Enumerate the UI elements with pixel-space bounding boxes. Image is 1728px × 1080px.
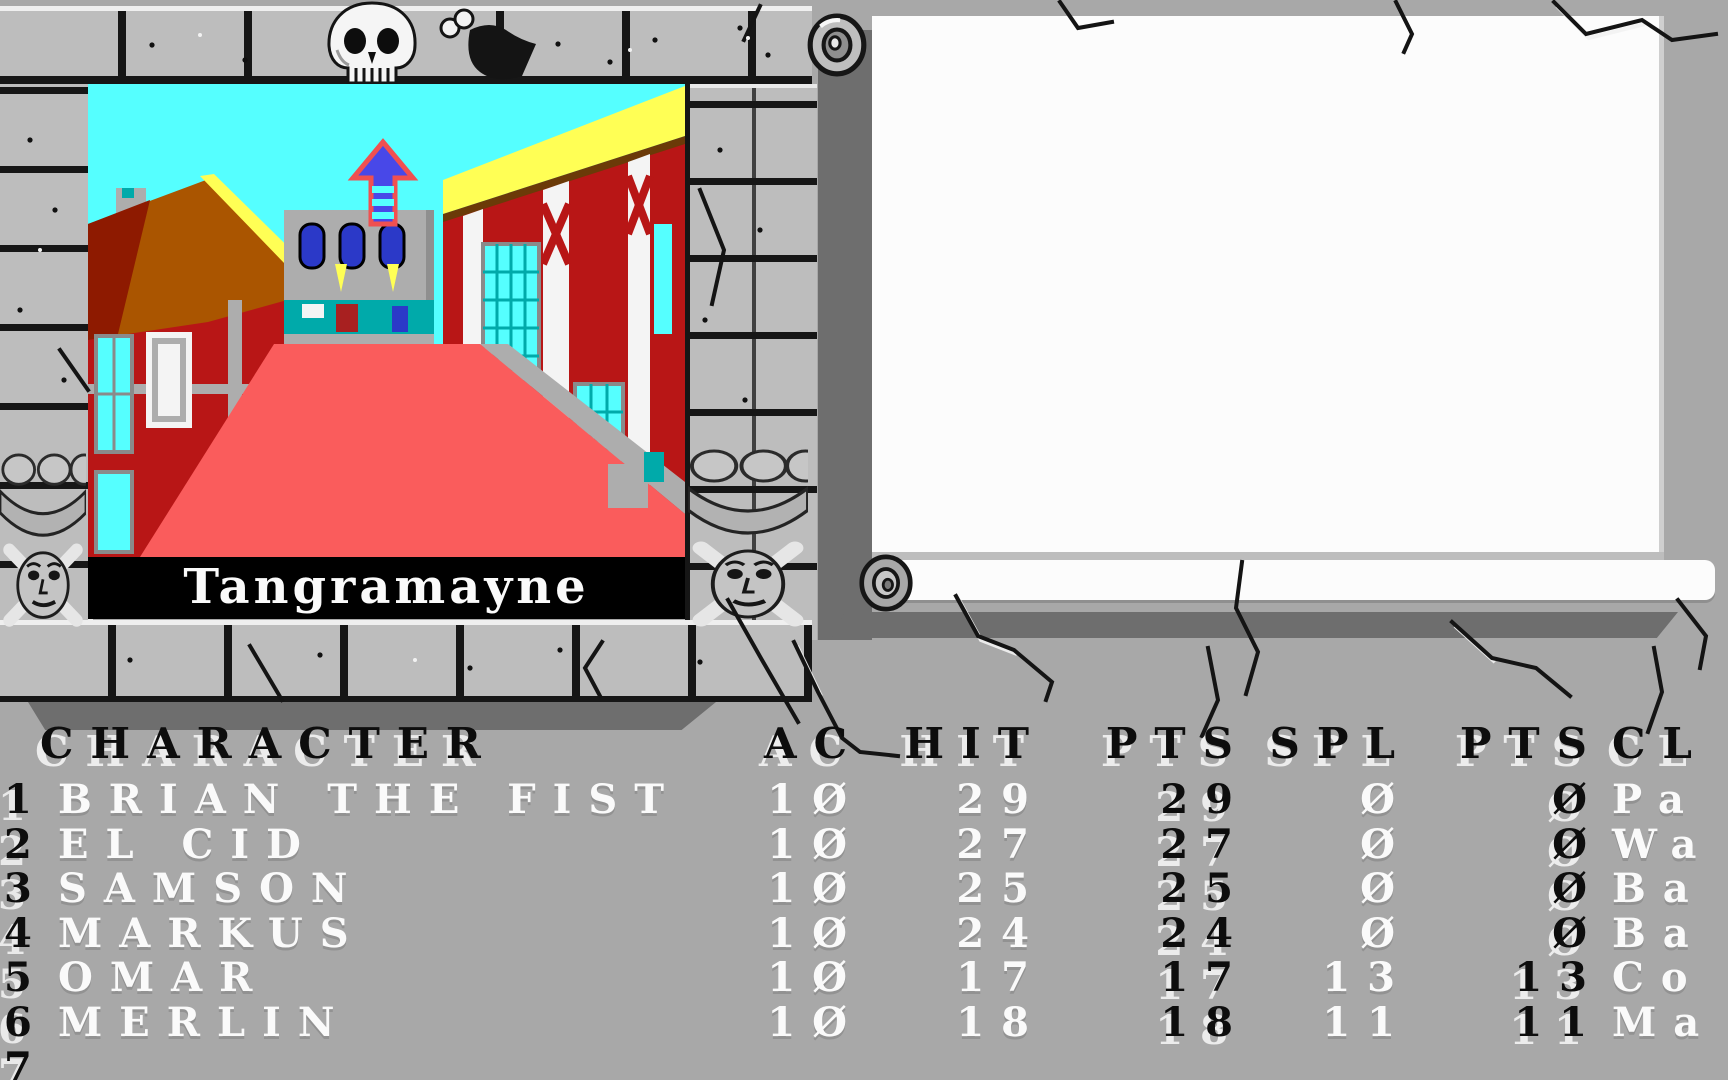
spell-points-current: Ø: [1264, 823, 1412, 867]
slot-number: 6: [4, 1001, 54, 1045]
party-member-row[interactable]: 3 SAMSON 1Ø 25 25 Ø Ø Ba: [0, 867, 1728, 912]
party-member-row[interactable]: 2 EL CID 1Ø 27 27 Ø Ø Wa: [0, 823, 1728, 868]
armor-class: 1Ø: [724, 912, 864, 956]
party-member-row[interactable]: 7: [0, 1046, 1728, 1080]
character-name: SAMSON: [58, 867, 365, 911]
slot-number: 4: [4, 912, 54, 956]
scroll-curl-icon: [806, 12, 868, 78]
game-screen: Tangramayne: [0, 0, 1728, 1080]
character-name: BRIAN THE FIST: [58, 778, 681, 822]
doorstep: [644, 452, 664, 482]
scroll-bottom-roll: [893, 560, 1715, 600]
class-abbrev: Ma: [1612, 1001, 1728, 1045]
location-label-bar: Tangramayne: [88, 557, 685, 619]
slot-number: 2: [4, 823, 54, 867]
message-scroll-window: [872, 16, 1664, 552]
scroll-left-shadow: [818, 30, 872, 640]
slot-number: 3: [4, 867, 54, 911]
class-abbrev: Wa: [1612, 823, 1728, 867]
hit-points-current: 29: [900, 778, 1046, 822]
hit-points-current: 18: [900, 1001, 1046, 1045]
col-hit: HIT: [900, 722, 1046, 766]
col-hit-pts: PTS: [1098, 722, 1250, 766]
character-name: OMAR: [58, 956, 269, 1000]
hit-points-max: 27: [1098, 823, 1250, 867]
armor-class: 1Ø: [724, 778, 864, 822]
spell-points-current: 13: [1264, 956, 1412, 1000]
stone-frame-shadow: [28, 702, 716, 730]
town-street-scene: [88, 84, 685, 557]
slot-number: 1: [4, 778, 54, 822]
armor-class: 1Ø: [724, 956, 864, 1000]
hit-points-current: 25: [900, 867, 1046, 911]
spell-points-current: Ø: [1264, 778, 1412, 822]
spell-points-max: Ø: [1452, 778, 1604, 822]
skull-and-crossbones-icon: [688, 448, 808, 638]
scene-viewport[interactable]: [88, 84, 685, 557]
hit-points-max: 25: [1098, 867, 1250, 911]
location-label: Tangramayne: [183, 559, 589, 615]
hit-points-current: 17: [900, 956, 1046, 1000]
party-member-row[interactable]: 6 MERLIN 1Ø 18 18 11 11 Ma: [0, 1001, 1728, 1046]
party-rows: 1 BRIAN THE FIST 1Ø 29 29 Ø Ø Pa 2 EL CI…: [0, 778, 1728, 1080]
scroll-fold-line: [872, 552, 1664, 560]
col-class: CL: [1612, 722, 1728, 766]
armor-class: 1Ø: [724, 823, 864, 867]
party-member-row[interactable]: 4 MARKUS 1Ø 24 24 Ø Ø Ba: [0, 912, 1728, 957]
scroll-curl-icon: [858, 553, 914, 613]
slot-number: 5: [4, 956, 54, 1000]
col-spl: SPL: [1264, 722, 1412, 766]
spell-points-current: Ø: [1264, 912, 1412, 956]
class-abbrev: Co: [1612, 956, 1728, 1000]
class-abbrev: Ba: [1612, 867, 1728, 911]
hit-points-max: 29: [1098, 778, 1250, 822]
hit-points-current: 27: [900, 823, 1046, 867]
col-spl-pts: PTS: [1452, 722, 1604, 766]
slot-number: 7: [4, 1046, 54, 1080]
col-ac: AC: [724, 722, 864, 766]
party-member-row[interactable]: 1 BRIAN THE FIST 1Ø 29 29 Ø Ø Pa: [0, 778, 1728, 823]
spell-points-current: 11: [1264, 1001, 1412, 1045]
character-name: EL CID: [58, 823, 318, 867]
hit-points-current: 24: [900, 912, 1046, 956]
hit-points-max: 24: [1098, 912, 1250, 956]
character-name: MARKUS: [58, 912, 366, 956]
party-member-row[interactable]: 5 OMAR 1Ø 17 17 13 13 Co: [0, 956, 1728, 1001]
spell-points-max: Ø: [1452, 867, 1604, 911]
center-building: [284, 210, 434, 354]
sidewalk-corner: [608, 464, 648, 508]
spell-points-max: 13: [1452, 956, 1604, 1000]
character-name: MERLIN: [58, 1001, 351, 1045]
spell-points-max: 11: [1452, 1001, 1604, 1045]
armor-class: 1Ø: [724, 1001, 864, 1045]
class-abbrev: Pa: [1612, 778, 1728, 822]
scroll-drop-shadow: [832, 612, 1678, 638]
spell-points-max: Ø: [1452, 912, 1604, 956]
skull-icon: [318, 0, 426, 86]
hit-points-max: 18: [1098, 1001, 1250, 1045]
armor-class: 1Ø: [724, 867, 864, 911]
skull-and-crossbones-icon: [0, 452, 86, 638]
spell-points-max: Ø: [1452, 823, 1604, 867]
hit-points-max: 17: [1098, 956, 1250, 1000]
spell-points-current: Ø: [1264, 867, 1412, 911]
class-abbrev: Ba: [1612, 912, 1728, 956]
